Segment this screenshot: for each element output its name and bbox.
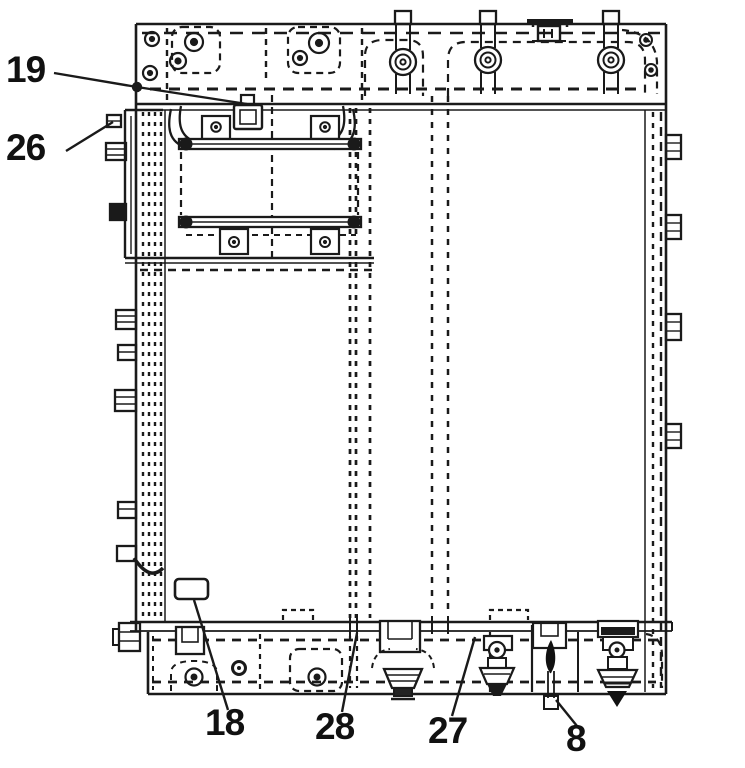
right-edge-fittings bbox=[666, 135, 681, 448]
callout-label-27: 27 bbox=[428, 712, 467, 749]
callout-leader-lines bbox=[54, 73, 577, 726]
left-side-band bbox=[143, 110, 165, 622]
plate-part-18 bbox=[175, 579, 208, 599]
callout-label-19: 19 bbox=[6, 51, 45, 88]
right-side-band bbox=[645, 110, 661, 692]
parts-diagram-figure: 19 26 18 28 27 8 bbox=[0, 0, 745, 768]
top-left-bolt-bosses bbox=[143, 27, 340, 80]
pin-part-8 bbox=[532, 623, 578, 709]
callout-label-26: 26 bbox=[6, 129, 45, 166]
drain-plug-left bbox=[480, 632, 514, 696]
cooler-top-fitting bbox=[234, 95, 262, 129]
callout-label-18: 18 bbox=[205, 704, 244, 741]
core-dashed-channels bbox=[350, 96, 448, 618]
tank-line-drawing bbox=[0, 0, 745, 768]
left-edge-fittings bbox=[113, 310, 163, 651]
callout-label-28: 28 bbox=[315, 708, 354, 745]
callout-label-8: 8 bbox=[566, 720, 586, 757]
drain-funnel bbox=[372, 621, 434, 699]
top-right-corner-detail bbox=[622, 30, 657, 94]
oil-cooler-assembly bbox=[125, 95, 374, 270]
